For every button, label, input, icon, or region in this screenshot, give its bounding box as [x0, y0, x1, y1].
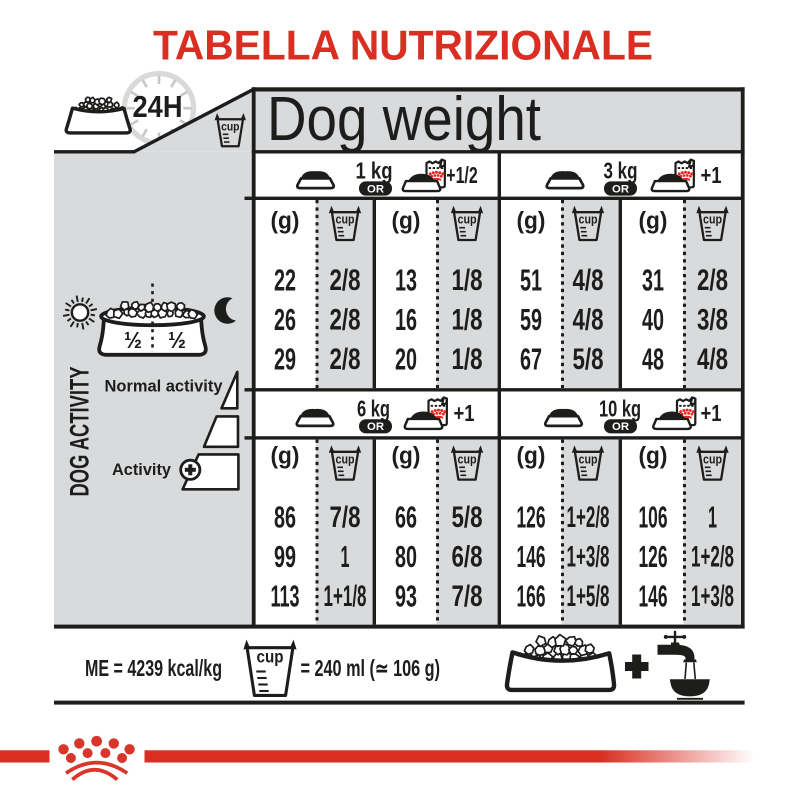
svg-text:7/8: 7/8 — [452, 580, 483, 613]
svg-text:2/8: 2/8 — [330, 264, 361, 297]
svg-text:166: 166 — [517, 579, 546, 614]
svg-text:29: 29 — [274, 342, 296, 377]
svg-text:26: 26 — [274, 302, 296, 337]
svg-text:(g): (g) — [392, 443, 421, 470]
svg-text:(g): (g) — [271, 443, 300, 470]
svg-text:1+3/8: 1+3/8 — [691, 580, 734, 613]
svg-text:1: 1 — [341, 539, 350, 574]
svg-text:1/8: 1/8 — [452, 264, 483, 297]
svg-text:146: 146 — [639, 579, 668, 614]
svg-text:13: 13 — [395, 263, 417, 298]
svg-text:1+3/8: 1+3/8 — [567, 541, 610, 574]
svg-text:1 kg: 1 kg — [356, 158, 393, 184]
svg-text:4/8: 4/8 — [697, 343, 728, 376]
svg-text:+1: +1 — [701, 400, 722, 426]
svg-text:40: 40 — [642, 302, 664, 337]
svg-text:16: 16 — [395, 302, 417, 337]
svg-text:1: 1 — [708, 500, 717, 535]
svg-text:(g): (g) — [517, 208, 546, 235]
svg-text:7/8: 7/8 — [330, 501, 361, 534]
svg-text:+1/2: +1/2 — [446, 162, 478, 188]
svg-text:93: 93 — [395, 579, 417, 614]
svg-text:20: 20 — [395, 342, 417, 377]
svg-text:Normal activity: Normal activity — [105, 377, 224, 396]
svg-text:126: 126 — [517, 500, 546, 535]
svg-text:2/8: 2/8 — [330, 304, 361, 337]
svg-text:113: 113 — [271, 579, 300, 614]
svg-text:ME = 4239 kcal/kg: ME = 4239 kcal/kg — [85, 655, 222, 681]
svg-text:2/8: 2/8 — [330, 343, 361, 376]
svg-text:48: 48 — [642, 342, 664, 377]
svg-text:10 kg: 10 kg — [599, 395, 641, 421]
svg-text:3 kg: 3 kg — [604, 158, 638, 184]
svg-text:59: 59 — [520, 302, 542, 337]
svg-text:126: 126 — [639, 539, 668, 574]
svg-text:DOG ACTIVITY: DOG ACTIVITY — [65, 367, 95, 497]
svg-text:4/8: 4/8 — [573, 264, 604, 297]
svg-text:½: ½ — [124, 327, 142, 353]
svg-text:1/8: 1/8 — [452, 304, 483, 337]
svg-text:½: ½ — [168, 327, 186, 353]
svg-text:99: 99 — [274, 539, 296, 574]
svg-text:2/8: 2/8 — [697, 264, 728, 297]
svg-text:(g): (g) — [271, 208, 300, 235]
svg-text:(g): (g) — [639, 443, 668, 470]
svg-text:66: 66 — [395, 500, 417, 535]
svg-text:+1: +1 — [701, 162, 722, 188]
svg-text:22: 22 — [274, 263, 296, 298]
svg-text:(g): (g) — [639, 208, 668, 235]
svg-text:(g): (g) — [517, 443, 546, 470]
svg-text:67: 67 — [520, 342, 542, 377]
svg-text:146: 146 — [517, 539, 546, 574]
svg-text:31: 31 — [642, 263, 664, 298]
svg-text:1+2/8: 1+2/8 — [691, 541, 734, 574]
svg-text:24H: 24H — [133, 89, 183, 124]
svg-text:3/8: 3/8 — [697, 304, 728, 337]
svg-text:80: 80 — [395, 539, 417, 574]
svg-text:(g): (g) — [392, 208, 421, 235]
svg-text:5/8: 5/8 — [452, 501, 483, 534]
svg-text:1+5/8: 1+5/8 — [567, 580, 610, 613]
svg-text:4/8: 4/8 — [573, 304, 604, 337]
svg-text:6/8: 6/8 — [452, 541, 483, 574]
svg-text:1+1/8: 1+1/8 — [324, 580, 367, 613]
svg-text:1/8: 1/8 — [452, 343, 483, 376]
svg-text:5/8: 5/8 — [573, 343, 604, 376]
svg-text:Dog weight: Dog weight — [267, 85, 541, 154]
svg-text:6 kg: 6 kg — [357, 395, 390, 421]
svg-text:Activity: Activity — [112, 460, 172, 479]
svg-text:51: 51 — [520, 263, 542, 298]
svg-text:TABELLA NUTRIZIONALE: TABELLA NUTRIZIONALE — [153, 22, 653, 69]
svg-text:86: 86 — [274, 500, 296, 535]
svg-text:1+2/8: 1+2/8 — [567, 501, 610, 534]
svg-text:106: 106 — [639, 500, 668, 535]
svg-text:= 240 ml (≃ 106 g): = 240 ml (≃ 106 g) — [301, 655, 441, 681]
svg-text:+1: +1 — [454, 400, 475, 426]
